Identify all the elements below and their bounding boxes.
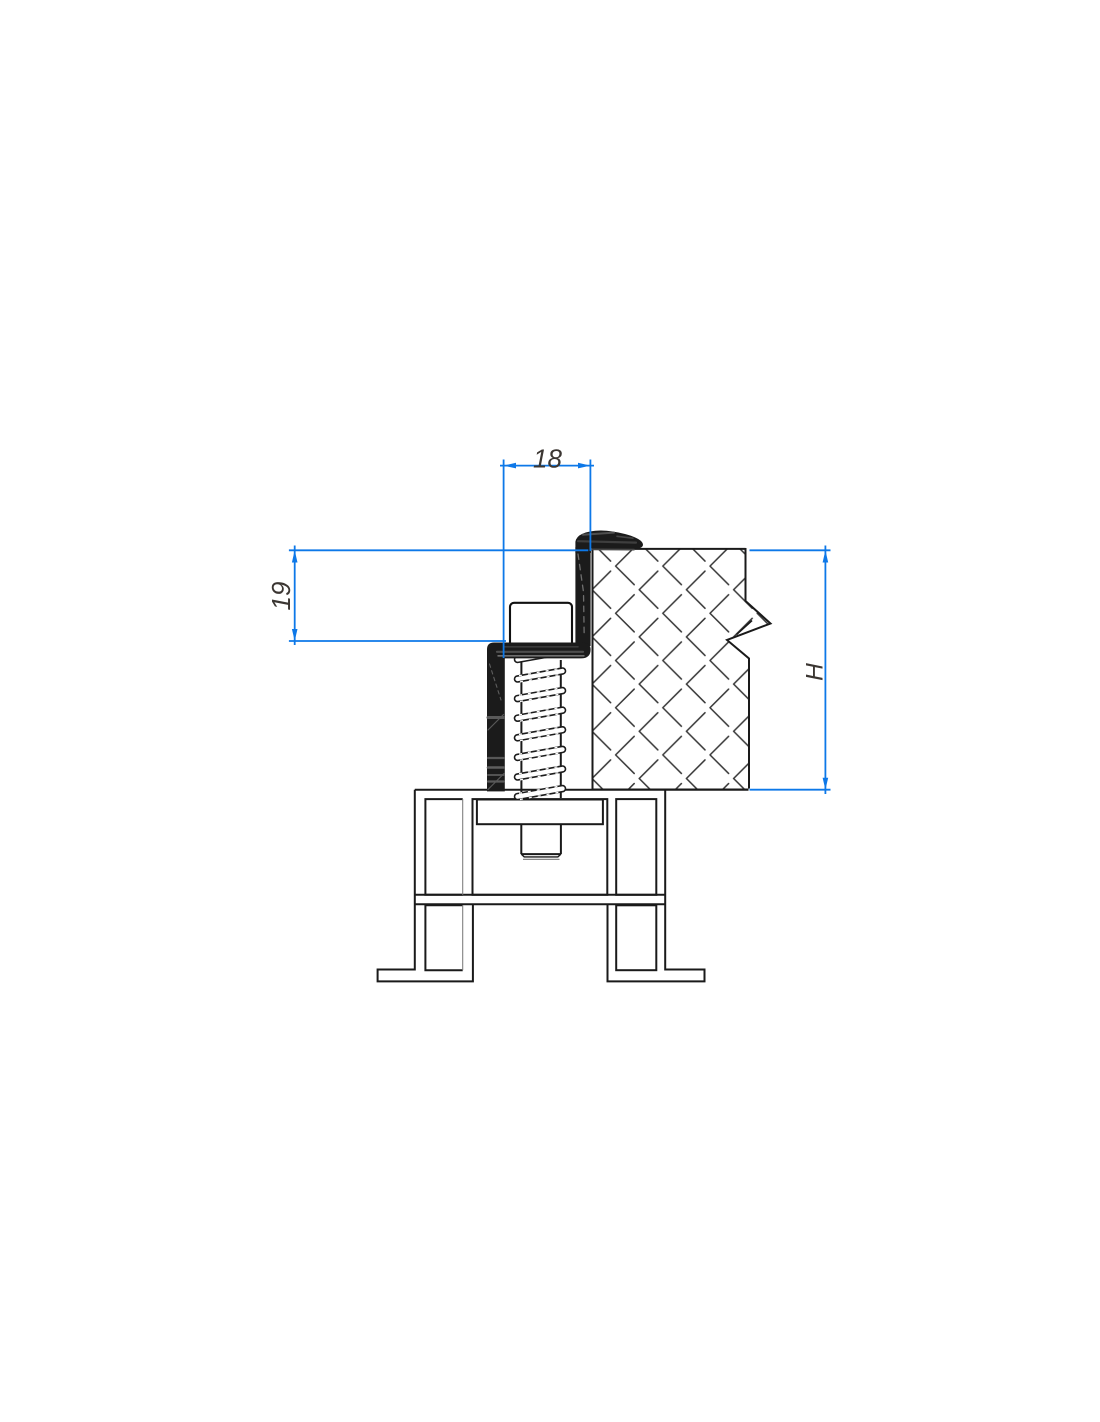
svg-text:19: 19 <box>266 582 296 611</box>
svg-text:H: H <box>802 663 829 681</box>
svg-text:18: 18 <box>533 444 562 474</box>
